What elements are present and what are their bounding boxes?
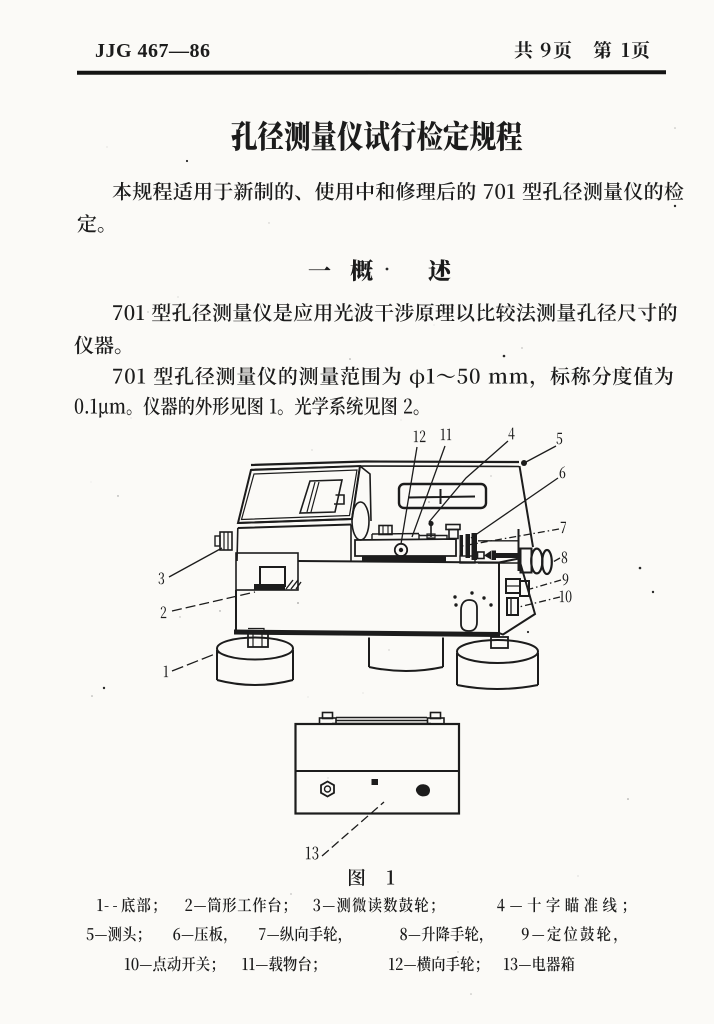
svg-text:JJG 467—86: JJG 467—86 [95,40,211,62]
